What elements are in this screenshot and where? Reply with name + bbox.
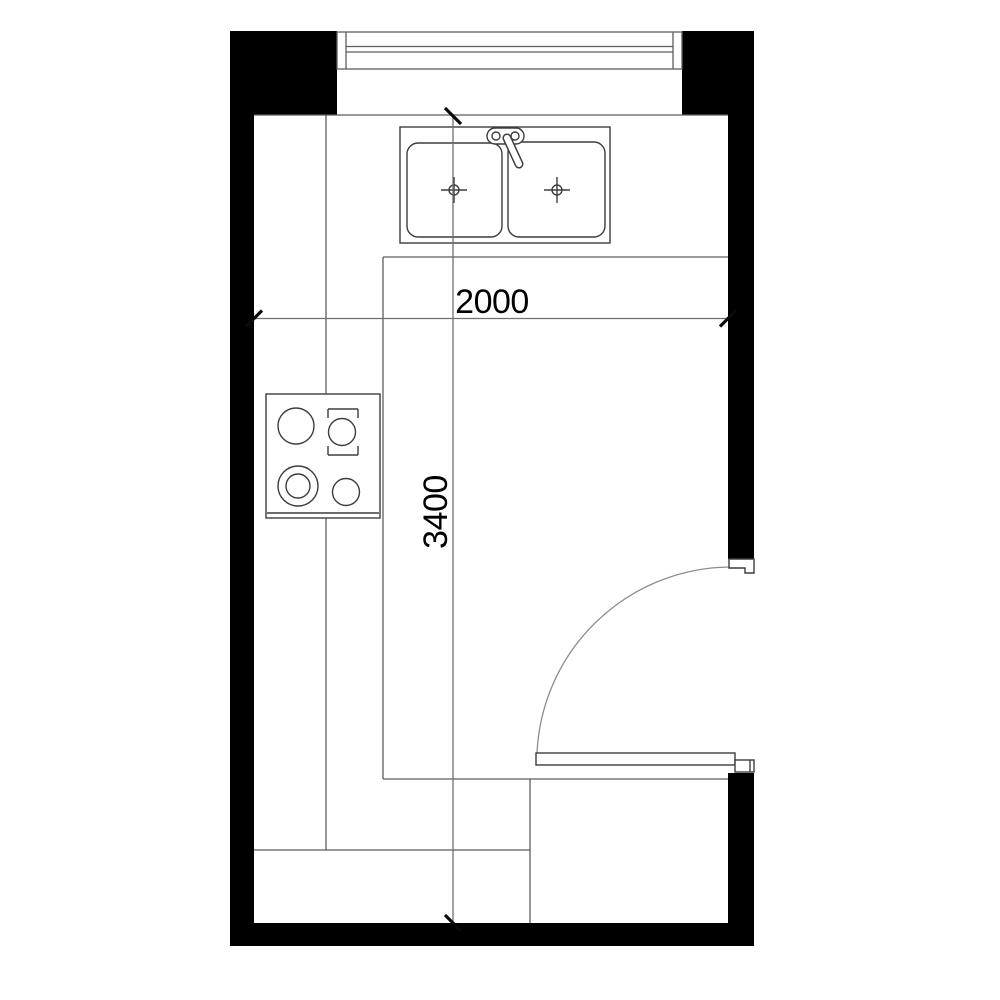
wall-top-left-pier [230,31,337,115]
door-jamb-bottom [735,760,754,772]
wall-left [230,31,254,946]
wall-right-upper [728,31,754,559]
cooktop-icon [266,394,380,518]
door-swing-arc [537,567,729,753]
kitchen-floor-plan: 2000 3400 [0,0,1000,1000]
door-jamb-top [729,559,754,573]
door-icon [536,559,754,772]
sink-icon [400,127,610,243]
dimension-height-label: 3400 [417,475,455,549]
window-frame [337,32,682,69]
door-leaf [536,753,735,765]
dimension-width-label: 2000 [455,283,529,321]
wall-bottom [230,923,754,946]
wall-right-lower [728,773,754,946]
